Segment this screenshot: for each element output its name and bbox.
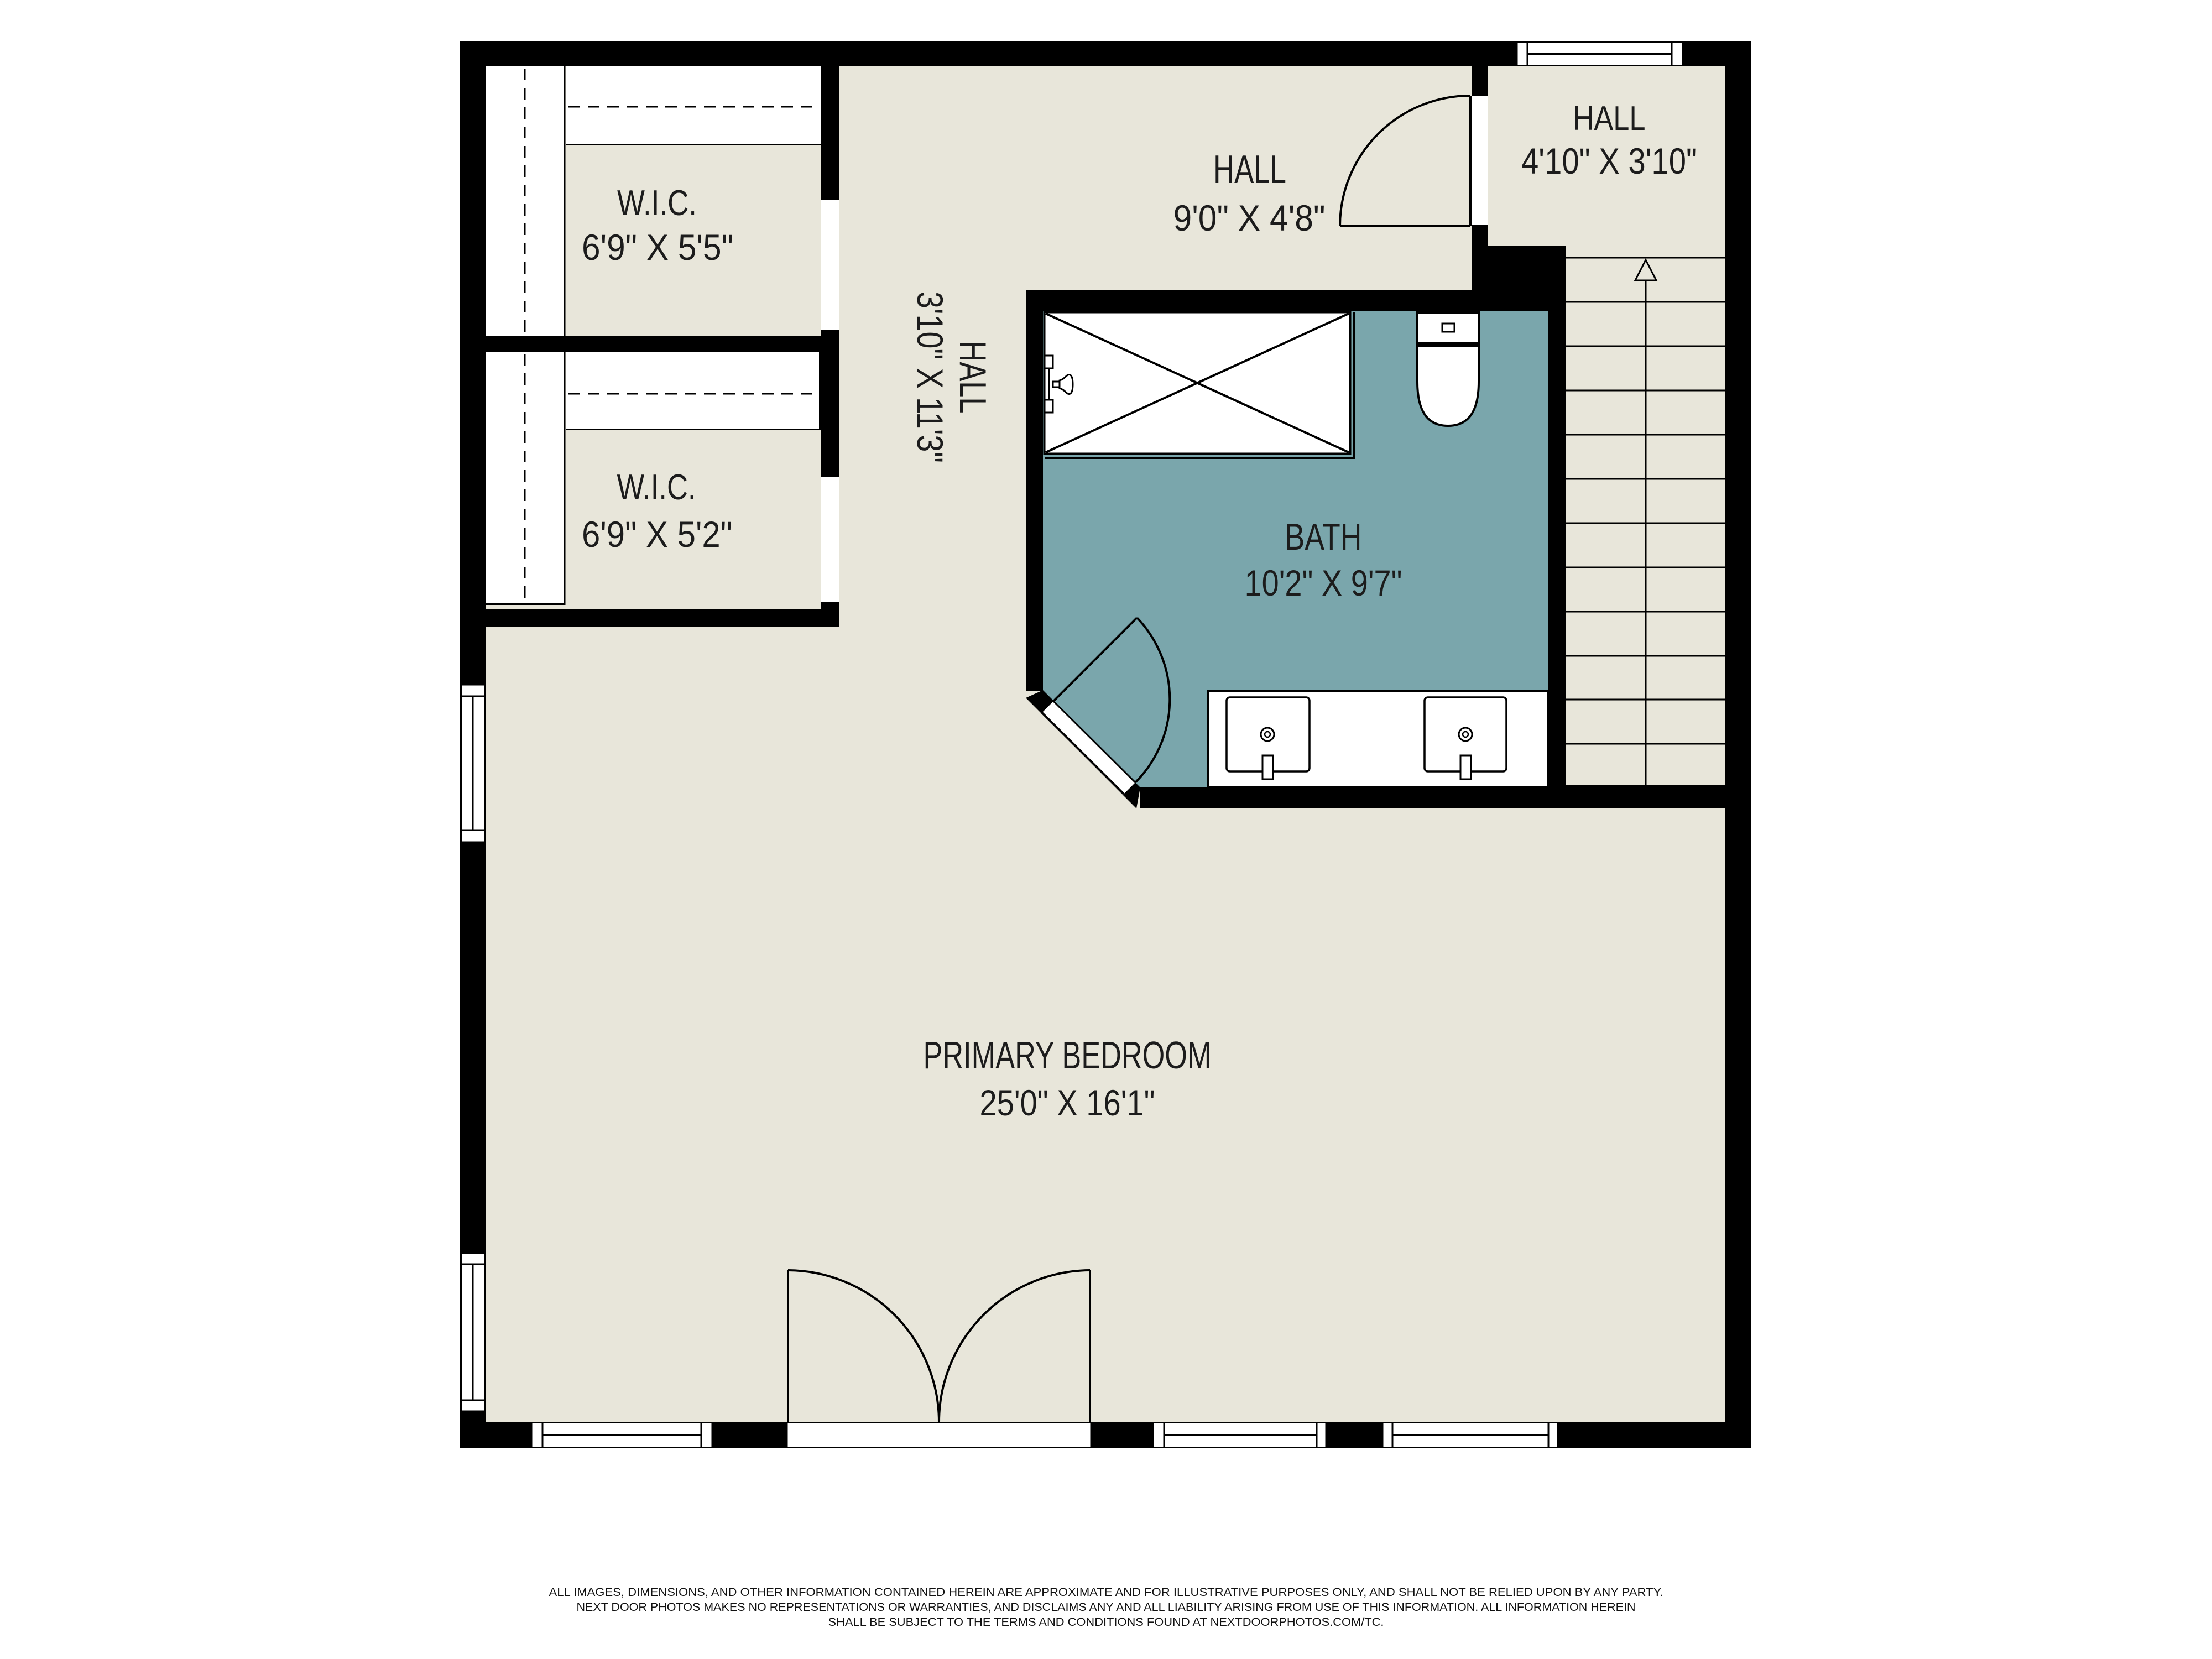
svg-text:HALL: HALL xyxy=(952,341,994,414)
svg-text:6'9" X 5'5": 6'9" X 5'5" xyxy=(582,227,733,268)
svg-text:HALL: HALL xyxy=(1573,100,1646,138)
svg-text:SHALL BE SUBJECT TO THE TERMS: SHALL BE SUBJECT TO THE TERMS AND CONDIT… xyxy=(828,1615,1384,1629)
svg-text:25'0" X 16'1": 25'0" X 16'1" xyxy=(980,1082,1155,1123)
svg-text:3'10" X 11'3": 3'10" X 11'3" xyxy=(910,291,951,463)
svg-text:6'9" X 5'2": 6'9" X 5'2" xyxy=(582,514,732,555)
svg-text:9'0" X 4'8": 9'0" X 4'8" xyxy=(1173,197,1326,238)
svg-text:NEXT DOOR PHOTOS MAKES NO REPR: NEXT DOOR PHOTOS MAKES NO REPRESENTATION… xyxy=(577,1600,1636,1614)
svg-text:HALL: HALL xyxy=(1213,148,1286,192)
svg-text:BATH: BATH xyxy=(1285,516,1362,558)
svg-text:PRIMARY BEDROOM: PRIMARY BEDROOM xyxy=(924,1034,1212,1077)
svg-text:10'2" X 9'7": 10'2" X 9'7" xyxy=(1245,562,1402,603)
svg-text:W.I.C.: W.I.C. xyxy=(617,182,697,223)
svg-text:W.I.C.: W.I.C. xyxy=(617,467,696,507)
svg-text:4'10" X 3'10": 4'10" X 3'10" xyxy=(1521,140,1697,181)
svg-text:ALL IMAGES, DIMENSIONS, AND OT: ALL IMAGES, DIMENSIONS, AND OTHER INFORM… xyxy=(549,1585,1663,1599)
